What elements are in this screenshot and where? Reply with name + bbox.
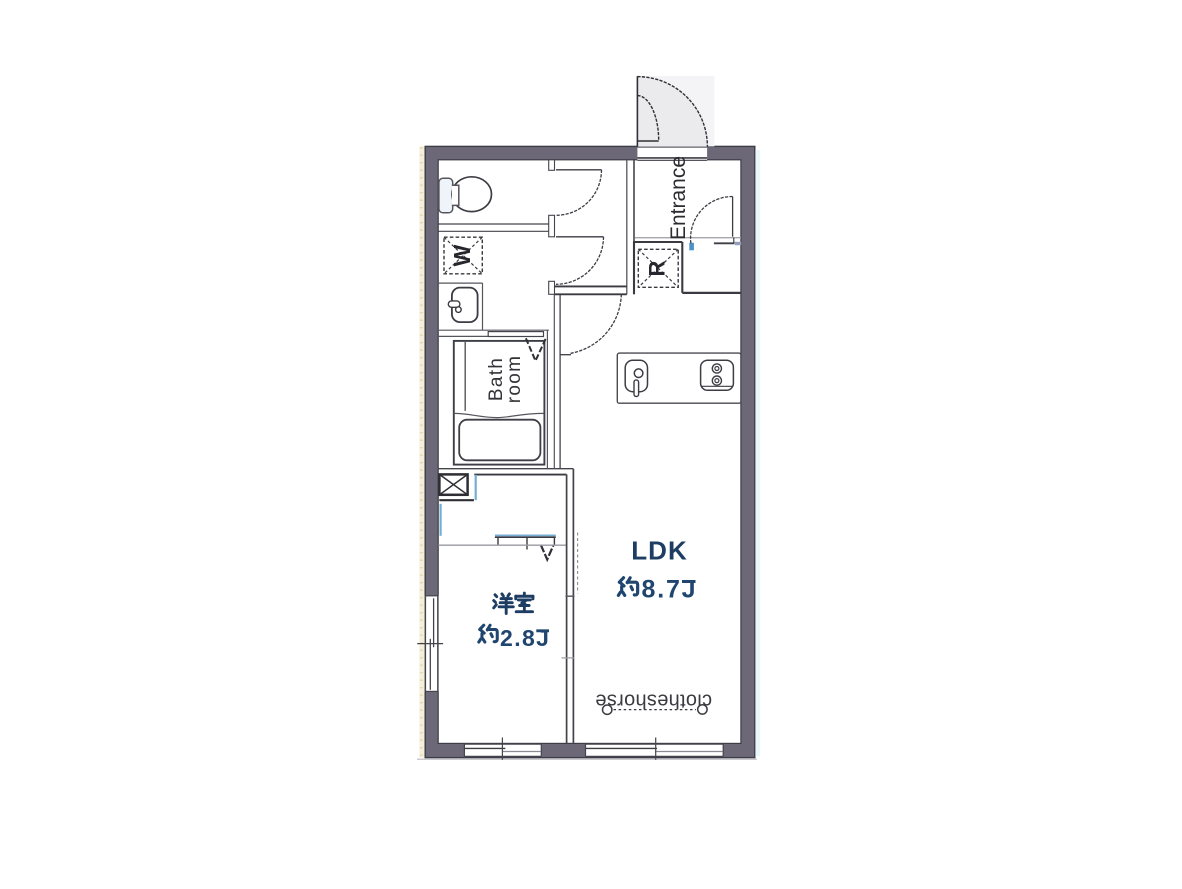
svg-text:LDK: LDK — [631, 536, 687, 566]
svg-text:W: W — [449, 244, 475, 266]
svg-text:2.8J: 2.8J — [500, 625, 550, 651]
svg-text:R: R — [645, 260, 670, 276]
svg-text:clotheshorse: clotheshorse — [595, 689, 712, 711]
svg-text:Entrance: Entrance — [667, 156, 690, 240]
svg-text:8.7J: 8.7J — [642, 576, 698, 604]
svg-text:room: room — [504, 355, 525, 404]
